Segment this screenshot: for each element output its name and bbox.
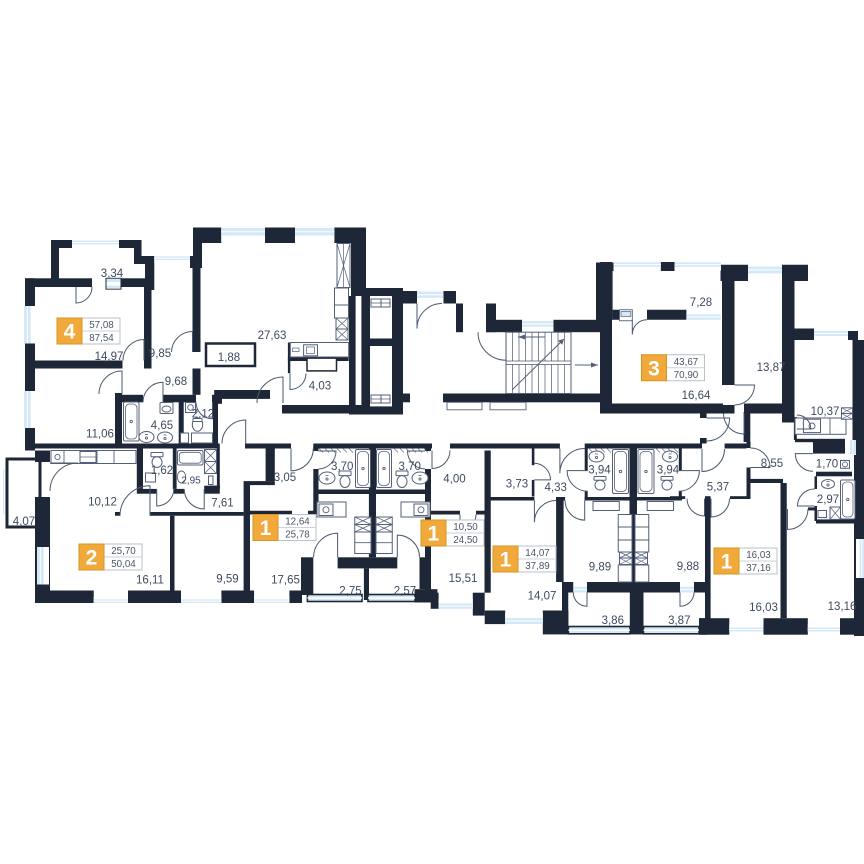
svg-text:1,88: 1,88 bbox=[218, 352, 240, 364]
svg-text:7,28: 7,28 bbox=[690, 297, 712, 309]
svg-text:13,16: 13,16 bbox=[828, 601, 857, 613]
svg-text:2,12: 2,12 bbox=[192, 409, 214, 421]
svg-text:9,59: 9,59 bbox=[216, 574, 238, 586]
svg-text:7,61: 7,61 bbox=[211, 498, 233, 510]
svg-text:1: 1 bbox=[428, 523, 440, 546]
svg-text:1,62: 1,62 bbox=[151, 465, 173, 477]
svg-text:4,03: 4,03 bbox=[309, 381, 331, 393]
svg-text:3,94: 3,94 bbox=[588, 465, 611, 477]
svg-text:16,11: 16,11 bbox=[136, 575, 164, 587]
svg-text:2,57: 2,57 bbox=[394, 586, 416, 598]
svg-text:16,03: 16,03 bbox=[746, 550, 771, 561]
svg-text:16,03: 16,03 bbox=[749, 602, 778, 614]
svg-text:4: 4 bbox=[64, 321, 76, 344]
svg-text:3,05: 3,05 bbox=[274, 472, 296, 484]
svg-text:3,87: 3,87 bbox=[668, 615, 690, 627]
svg-text:10,12: 10,12 bbox=[88, 497, 117, 509]
svg-text:2: 2 bbox=[86, 547, 98, 570]
svg-text:50,04: 50,04 bbox=[111, 559, 136, 570]
svg-text:3,94: 3,94 bbox=[657, 465, 680, 477]
svg-text:15,51: 15,51 bbox=[449, 573, 478, 585]
svg-text:9,88: 9,88 bbox=[677, 561, 699, 573]
svg-text:3,86: 3,86 bbox=[602, 615, 624, 627]
svg-text:17,65: 17,65 bbox=[271, 575, 300, 587]
svg-text:8,55: 8,55 bbox=[761, 458, 783, 470]
svg-text:4,33: 4,33 bbox=[545, 482, 567, 494]
svg-text:9,85: 9,85 bbox=[149, 348, 171, 360]
svg-text:11,06: 11,06 bbox=[86, 429, 114, 441]
svg-text:3: 3 bbox=[648, 357, 660, 380]
svg-text:3,70: 3,70 bbox=[399, 461, 421, 473]
svg-text:25,70: 25,70 bbox=[111, 546, 136, 557]
svg-text:14,07: 14,07 bbox=[525, 548, 550, 559]
svg-text:25,78: 25,78 bbox=[285, 530, 310, 541]
svg-text:4,00: 4,00 bbox=[443, 473, 465, 485]
svg-text:1,70: 1,70 bbox=[816, 459, 838, 471]
svg-text:87,54: 87,54 bbox=[89, 333, 114, 344]
svg-text:3,70: 3,70 bbox=[331, 461, 353, 473]
svg-text:24,50: 24,50 bbox=[453, 535, 478, 546]
svg-text:37,89: 37,89 bbox=[525, 561, 550, 572]
svg-text:1: 1 bbox=[500, 549, 512, 572]
svg-text:9,89: 9,89 bbox=[589, 562, 611, 574]
svg-text:13,87: 13,87 bbox=[757, 362, 786, 374]
svg-text:4,07: 4,07 bbox=[13, 516, 35, 528]
svg-text:16,64: 16,64 bbox=[682, 390, 711, 402]
svg-text:27,63: 27,63 bbox=[258, 330, 287, 342]
svg-text:14,07: 14,07 bbox=[528, 591, 557, 603]
svg-text:3,34: 3,34 bbox=[101, 268, 124, 280]
svg-text:14,97: 14,97 bbox=[95, 351, 124, 363]
svg-text:70,90: 70,90 bbox=[674, 370, 699, 381]
svg-text:43,67: 43,67 bbox=[674, 357, 699, 368]
svg-text:1: 1 bbox=[260, 517, 272, 540]
svg-text:2,97: 2,97 bbox=[817, 494, 839, 506]
svg-text:10,50: 10,50 bbox=[453, 522, 478, 533]
svg-text:5,37: 5,37 bbox=[707, 482, 729, 494]
svg-text:2,95: 2,95 bbox=[181, 475, 201, 486]
svg-text:9,68: 9,68 bbox=[165, 376, 187, 388]
svg-text:3,73: 3,73 bbox=[506, 478, 528, 490]
svg-text:12,64: 12,64 bbox=[285, 517, 310, 528]
svg-text:1: 1 bbox=[721, 551, 733, 574]
svg-text:4,65: 4,65 bbox=[151, 420, 173, 432]
svg-text:2,75: 2,75 bbox=[339, 586, 361, 598]
svg-text:10,37: 10,37 bbox=[811, 406, 840, 418]
svg-text:37,16: 37,16 bbox=[746, 563, 771, 574]
svg-text:57,08: 57,08 bbox=[89, 320, 114, 331]
